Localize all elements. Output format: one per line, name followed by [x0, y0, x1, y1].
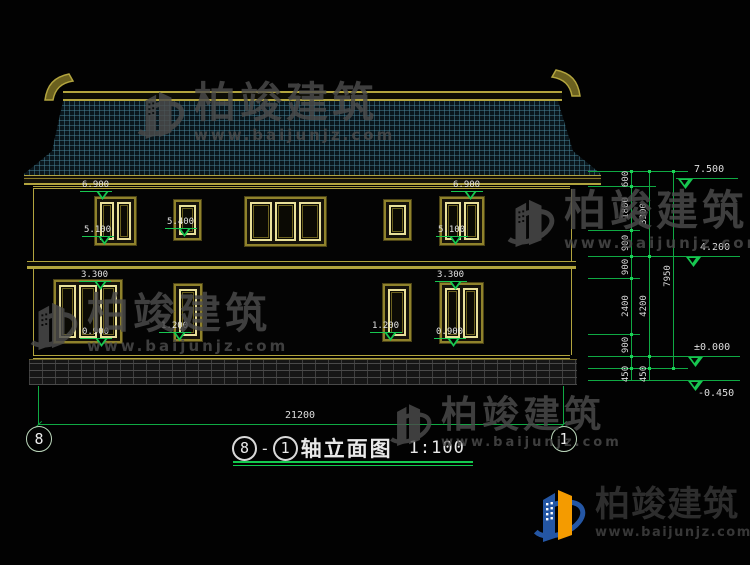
elevation-value: ±0.000	[694, 342, 730, 353]
level-label: 5.100	[82, 225, 114, 237]
extension-line	[588, 380, 688, 381]
elevation-marker-icon	[686, 257, 701, 267]
elevation-drawing-canvas: 6.900 5.100 5.400 6.900 5.100 3.300 0.90…	[0, 0, 750, 565]
title-separator: -	[260, 439, 270, 458]
level-label: 6.900	[451, 180, 483, 192]
axis-bubble-8: 8	[26, 426, 52, 452]
window-2f-double-right	[440, 197, 484, 245]
watermark-right: 柏竣建筑 www.baijunjz.com	[503, 190, 750, 252]
dim-value: 4200	[639, 295, 649, 317]
dim-value: 600	[621, 171, 631, 187]
window-2f-small-right	[384, 200, 411, 240]
window-2f-triple-center	[245, 197, 326, 246]
brick-plinth	[29, 359, 577, 385]
level-label: 1.200	[370, 321, 402, 333]
axis-line-left	[38, 386, 39, 424]
dim-value: 2400	[621, 295, 631, 317]
footer-brand-logo: 柏竣建筑 www.baijunjz.com	[530, 481, 750, 547]
title-underline	[233, 461, 473, 466]
watermark-logo-icon	[133, 83, 185, 143]
dim-value: 450	[621, 366, 631, 382]
dim-value: 900	[621, 259, 631, 275]
elevation-value: 7.500	[694, 164, 724, 175]
level-label: 0.900	[434, 327, 466, 339]
title-axis-a-bubble: 8	[232, 436, 257, 461]
dim-value: 900	[621, 337, 631, 353]
footer-logo-icon	[530, 481, 586, 547]
total-width-value: 21200	[270, 410, 330, 421]
elevation-marker-icon	[688, 357, 703, 367]
watermark-bottom: 柏竣建筑 www.baijunjz.com	[386, 396, 622, 450]
title-text: 轴立面图	[301, 433, 393, 463]
level-label: 3.300	[435, 270, 467, 282]
floor-divider-cornice	[27, 261, 576, 269]
watermark-left: 柏竣建筑 www.baijunjz.com	[26, 293, 288, 355]
dim-value: 450	[639, 366, 649, 382]
elevation-value: -0.450	[698, 388, 734, 399]
dim-value: 7950	[663, 265, 673, 287]
title-axis-b-bubble: 1	[273, 436, 298, 461]
level-label: 3.300	[79, 270, 111, 282]
level-label: 5.400	[165, 217, 197, 229]
level-label: 6.900	[80, 180, 112, 192]
watermark-logo-icon	[386, 396, 432, 450]
watermark-logo-icon	[503, 191, 555, 251]
level-label: 5.100	[436, 225, 468, 237]
watermark-top: 柏竣建筑 www.baijunjz.com	[133, 82, 395, 144]
roof-corner-ornament-right	[549, 68, 583, 98]
roof-corner-ornament-left	[42, 72, 76, 102]
watermark-logo-icon	[26, 294, 78, 354]
